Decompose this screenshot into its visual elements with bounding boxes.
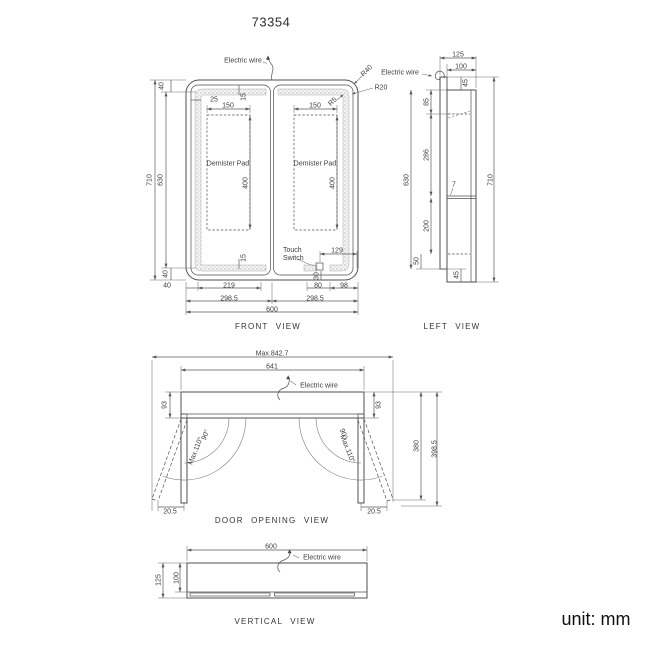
dim-vertical-depth-body: 100 <box>174 572 181 584</box>
dim-front-half-right: 298.5 <box>306 296 324 303</box>
dim-front-inset-v-bottom: 15 <box>241 254 248 262</box>
dim-vertical-width: 600 <box>265 544 277 551</box>
dim-left-depth-overall: 125 <box>452 52 464 59</box>
touch-switch-label: Touch Switch <box>283 247 319 264</box>
dim-left-top-offset: 45 <box>463 79 470 87</box>
door-electric-wire-label: Electric wire <box>300 383 338 390</box>
dim-door-depth-left: 93 <box>162 401 169 409</box>
door-opening-dimensions <box>152 357 442 511</box>
dim-vertical-depth-overall: 125 <box>156 574 163 586</box>
dim-door-max-width: Max.842.7 <box>256 351 289 358</box>
dim-left-overall-height: 710 <box>488 174 495 186</box>
dim-pad-height-left: 400 <box>243 177 250 189</box>
vertical-view-title: VERTICAL VIEW <box>235 618 316 626</box>
dim-front-inset-v-top: 15 <box>241 93 248 101</box>
unit-label: unit: mm <box>561 610 630 628</box>
dim-door-body-width: 641 <box>266 364 278 371</box>
dim-left-shelf-thickness: 7 <box>452 182 456 189</box>
dim-left-bottom-offset: 45 <box>454 271 461 279</box>
dim-pad-width-right: 150 <box>309 103 321 110</box>
dim-pad-width-left: 150 <box>222 103 234 110</box>
dim-front-overall-height: 710 <box>147 174 154 186</box>
dim-door-reach-max: 398.5 <box>432 440 439 458</box>
drawing-canvas <box>0 0 650 650</box>
dim-switch-offset: 129 <box>331 248 343 255</box>
left-electric-wire-label: Electric wire <box>381 70 419 77</box>
dim-front-bottom-d: 98 <box>340 283 348 290</box>
dim-front-overall-width: 600 <box>266 307 278 314</box>
dim-left-body-height: 630 <box>404 174 411 186</box>
dim-switch-bottom: 30 <box>314 272 321 280</box>
front-electric-wire-label: Electric wire <box>224 58 262 65</box>
dim-door-offset-right: 20.5 <box>367 509 381 516</box>
dim-front-bottom-a: 40 <box>163 283 171 290</box>
dim-front-bottom-margin: 40 <box>163 270 170 278</box>
door-opening-linework <box>152 375 393 503</box>
door-opening-view-title: DOOR OPENING VIEW <box>215 517 329 525</box>
dim-door-reach: 380 <box>414 440 421 452</box>
dim-left-seg-lower: 200 <box>424 220 431 232</box>
drawing-title: 73354 <box>252 16 291 29</box>
dim-left-seg-upper: 286 <box>424 149 431 161</box>
dim-front-bottom-b: 219 <box>223 283 235 290</box>
demister-pad-right-label: Demister Pad <box>294 161 336 168</box>
vertical-electric-wire-label: Electric wire <box>303 555 341 562</box>
dim-front-bottom-c: 80 <box>314 283 322 290</box>
dim-left-depth-body: 100 <box>455 64 467 71</box>
front-view-title: FRONT VIEW <box>235 323 301 331</box>
technical-drawing-page: 73354 unit: mm Electric wire 40 710 630 … <box>0 0 650 650</box>
dim-front-door-height: 630 <box>158 174 165 186</box>
dim-radius-mid: R20 <box>375 85 388 92</box>
front-view-linework <box>186 56 373 281</box>
dim-front-top-margin: 40 <box>159 82 166 90</box>
dim-pad-height-right: 400 <box>330 177 337 189</box>
dim-door-depth-right: 93 <box>376 401 383 409</box>
dim-front-inset-h: 25 <box>210 97 218 104</box>
left-view-title: LEFT VIEW <box>424 323 481 331</box>
dim-left-seg-bottom: 50 <box>414 257 421 265</box>
dim-door-offset-left: 20.5 <box>163 509 177 516</box>
dim-left-seg-top: 85 <box>424 98 431 106</box>
demister-pad-left-label: Demister Pad <box>207 161 249 168</box>
dim-front-half-left: 298.5 <box>220 296 238 303</box>
